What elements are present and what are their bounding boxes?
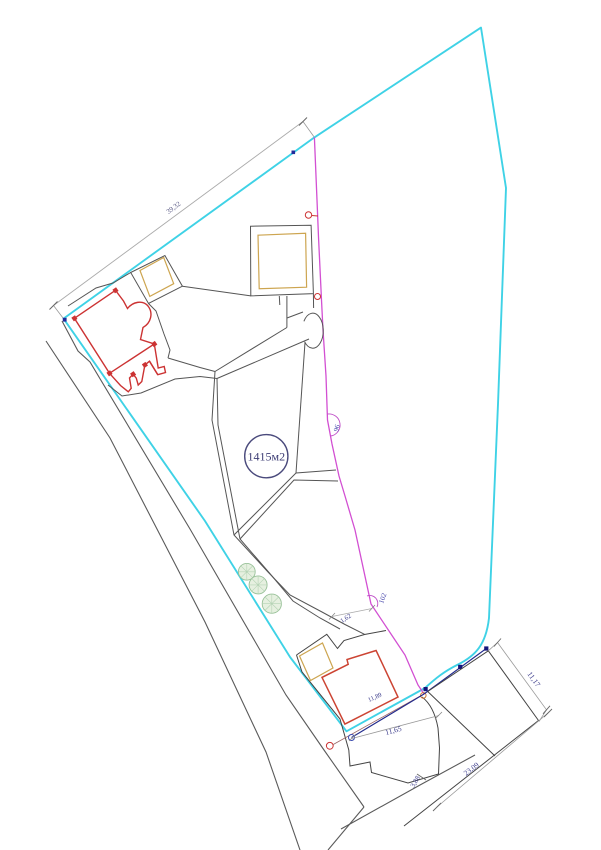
svg-text:1415м2: 1415м2 <box>248 450 286 464</box>
